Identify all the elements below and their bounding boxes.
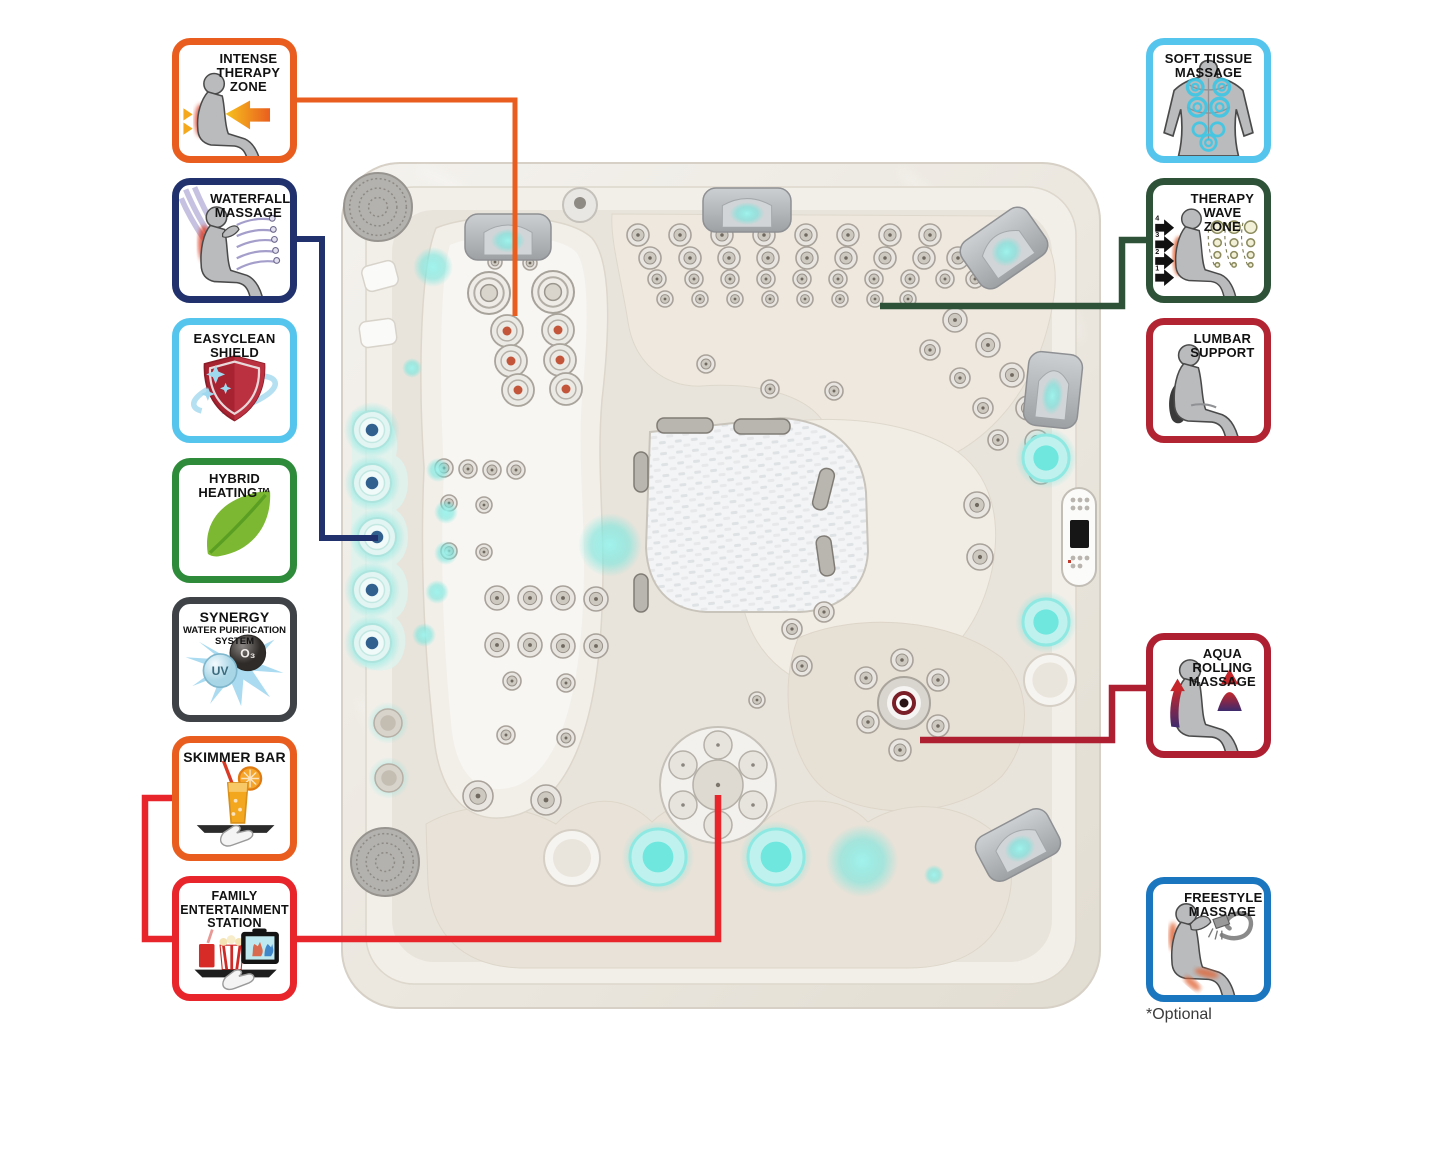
led-glow	[434, 541, 458, 565]
jet	[964, 492, 990, 518]
jet	[814, 602, 834, 622]
jet	[1000, 363, 1024, 387]
jet	[459, 460, 477, 478]
jet	[679, 247, 701, 269]
orange-core-jet	[491, 315, 523, 347]
jet	[976, 333, 1000, 357]
jet	[757, 247, 779, 269]
jet	[927, 669, 949, 691]
badge-label: AQUA ROLLING MASSAGE	[1184, 647, 1261, 689]
jet	[988, 430, 1008, 450]
jet	[584, 587, 608, 611]
jet	[927, 715, 949, 737]
jet	[889, 739, 911, 761]
jet	[657, 291, 673, 307]
badge-sublabel: WATER PURIFICATION SYSTEM	[179, 626, 290, 648]
optional-note: *Optional	[1146, 1006, 1212, 1024]
jet	[920, 340, 940, 360]
led-glow	[578, 513, 642, 577]
badge-label: LUMBAR SUPPORT	[1184, 332, 1261, 360]
speaker	[344, 173, 412, 241]
led-glow	[434, 500, 458, 524]
badge-intense-therapy-zone: INTENSE THERAPY ZONE	[172, 38, 297, 163]
badge-label: THERAPY WAVE ZONE	[1184, 192, 1261, 234]
jet	[648, 270, 666, 288]
badge-skimmer-bar: SKIMMER BAR	[172, 736, 297, 861]
badge-label: EASYCLEAN SHIELD	[179, 332, 290, 360]
jet	[697, 355, 715, 373]
jet	[891, 649, 913, 671]
jet	[835, 247, 857, 269]
jet	[792, 656, 812, 676]
cupholder	[1024, 654, 1076, 706]
jet	[476, 544, 492, 560]
badge-waterfall-massage: WATERFALL MASSAGE	[172, 178, 297, 303]
jet	[503, 672, 521, 690]
headrest	[703, 188, 791, 232]
jet	[973, 398, 993, 418]
badge-lumbar-support: LUMBAR SUPPORT	[1146, 318, 1271, 443]
jet	[749, 692, 765, 708]
lounger-side-jet	[344, 562, 400, 618]
arrow-number: 3	[1155, 230, 1159, 239]
jet	[913, 247, 935, 269]
orange-core-jet	[542, 314, 574, 346]
arrow-number: 4	[1155, 214, 1159, 223]
jet	[796, 247, 818, 269]
jet	[551, 586, 575, 610]
led-glow	[402, 358, 422, 378]
jet	[557, 674, 575, 692]
headrest	[1022, 350, 1083, 429]
jet	[936, 270, 954, 288]
badge-label: FAMILY ENTERTAINMENT STATION	[179, 890, 290, 931]
arrow-number: 1	[1155, 263, 1159, 272]
jet	[793, 270, 811, 288]
jet	[865, 270, 883, 288]
jet	[832, 291, 848, 307]
badge-soft-tissue-massage: SOFT TISSUE MASSAGE	[1146, 38, 1271, 163]
badge-aqua-rolling-massage: AQUA ROLLING MASSAGE	[1146, 633, 1271, 758]
flower-jet	[367, 702, 409, 744]
swirl-jet	[532, 271, 574, 313]
drain-jet	[878, 677, 930, 729]
badge-hybrid-heating: HYBRID HEATING™	[172, 458, 297, 583]
armrest-pad	[358, 318, 397, 349]
swirl-jet	[468, 272, 510, 314]
jet	[795, 224, 817, 246]
lounger-side-jet	[344, 455, 400, 511]
jet	[919, 224, 941, 246]
orange-core-jet	[495, 345, 527, 377]
waterfall-spout	[563, 188, 597, 222]
badge-label: WATERFALL MASSAGE	[210, 192, 287, 220]
flower-jet	[368, 757, 410, 799]
led-glow	[426, 458, 450, 482]
jet	[901, 270, 919, 288]
jet	[950, 368, 970, 388]
jet	[692, 291, 708, 307]
jet	[627, 224, 649, 246]
jet	[721, 270, 739, 288]
jet	[879, 224, 901, 246]
jet	[857, 711, 879, 733]
jet	[761, 380, 779, 398]
auxiliary-control-panel	[1062, 488, 1096, 586]
jet	[507, 461, 525, 479]
jet	[943, 308, 967, 332]
jet	[685, 270, 703, 288]
jet	[797, 291, 813, 307]
badge-label: FREESTYLE MASSAGE	[1184, 891, 1261, 919]
jet	[518, 633, 542, 657]
badge-label: SYNERGY	[179, 610, 290, 625]
jet	[483, 461, 501, 479]
jet	[551, 634, 575, 658]
orange-core-jet	[502, 374, 534, 406]
lit-cupholder	[622, 821, 694, 893]
jet	[757, 270, 775, 288]
uv-label: UV	[212, 664, 230, 678]
badge-label: SKIMMER BAR	[179, 750, 290, 765]
jet	[485, 633, 509, 657]
led-glow	[425, 580, 449, 604]
badge-label: INTENSE THERAPY ZONE	[210, 52, 287, 94]
led-glow	[826, 825, 898, 897]
cupholder	[544, 830, 600, 886]
led-glow	[412, 623, 436, 647]
lounger-side-jet	[344, 402, 400, 458]
jet	[463, 781, 493, 811]
jet	[855, 667, 877, 689]
jet	[639, 247, 661, 269]
jet	[518, 586, 542, 610]
led-glow	[413, 247, 453, 287]
orange-core-jet	[544, 344, 576, 376]
jet	[485, 586, 509, 610]
jet	[531, 785, 561, 815]
badge-label: HYBRID HEATING™	[179, 472, 290, 500]
jet	[837, 224, 859, 246]
jet	[497, 726, 515, 744]
badge-freestyle-massage: FREESTYLE MASSAGE	[1146, 877, 1271, 1002]
headrest	[465, 214, 551, 260]
badge-therapy-wave-zone: 4 3 2 1 THERAPY WAVE ZONE	[1146, 178, 1271, 303]
jet	[476, 497, 492, 513]
jet	[762, 291, 778, 307]
jet	[967, 544, 993, 570]
speaker	[351, 828, 419, 896]
jet	[718, 247, 740, 269]
lit-cupholder	[1015, 591, 1077, 653]
led-glow	[924, 865, 944, 885]
lit-cupholder	[1015, 427, 1077, 489]
o3-label: O₃	[240, 646, 255, 660]
jet	[782, 619, 802, 639]
jet	[829, 270, 847, 288]
hot-tub-feature-diagram: INTENSE THERAPY ZONE WATERFALL MASSAGE	[0, 0, 1440, 1152]
badge-synergy-system: O₃ UV SYNERGY WATER PURIFICATION SYSTEM	[172, 597, 297, 722]
footwell	[646, 418, 868, 612]
badge-easyclean-shield: EASYCLEAN SHIELD	[172, 318, 297, 443]
jet	[825, 382, 843, 400]
jet	[727, 291, 743, 307]
badge-label: SOFT TISSUE MASSAGE	[1153, 52, 1264, 80]
jet	[584, 634, 608, 658]
arrow-number: 2	[1155, 247, 1159, 256]
jet	[557, 729, 575, 747]
lounger-side-jet	[344, 615, 400, 671]
jet	[669, 224, 691, 246]
lit-cupholder	[740, 821, 812, 893]
jet	[874, 247, 896, 269]
orange-core-jet	[550, 373, 582, 405]
badge-family-entertainment-station: FAMILY ENTERTAINMENT STATION	[172, 876, 297, 1001]
